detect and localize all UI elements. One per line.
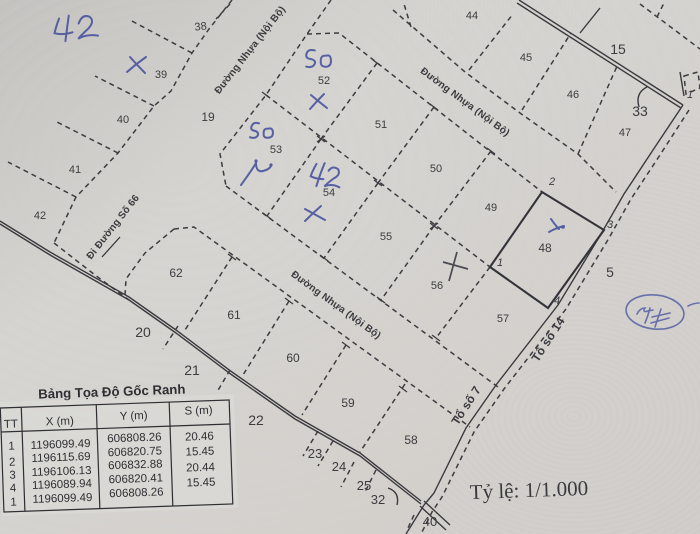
- svg-text:61: 61: [227, 308, 241, 322]
- svg-text:606808.26: 606808.26: [107, 431, 162, 445]
- svg-text:TT: TT: [4, 418, 18, 430]
- svg-text:55: 55: [380, 231, 392, 243]
- svg-text:24: 24: [332, 459, 346, 474]
- svg-text:52: 52: [318, 75, 330, 87]
- svg-text:45: 45: [520, 52, 532, 64]
- svg-text:20.46: 20.46: [185, 431, 214, 444]
- svg-text:20: 20: [135, 324, 151, 340]
- svg-text:58: 58: [404, 433, 418, 447]
- svg-text:15.45: 15.45: [185, 446, 214, 459]
- svg-text:1: 1: [8, 441, 15, 453]
- svg-text:49: 49: [485, 202, 497, 214]
- svg-text:3: 3: [607, 219, 614, 231]
- svg-text:2: 2: [9, 457, 16, 469]
- svg-text:33: 33: [632, 103, 648, 119]
- svg-text:3: 3: [9, 470, 16, 482]
- svg-text:42: 42: [34, 210, 46, 222]
- svg-text:57: 57: [497, 313, 509, 325]
- svg-text:23: 23: [308, 446, 322, 461]
- svg-text:1196089.94: 1196089.94: [32, 478, 93, 492]
- svg-text:44: 44: [466, 10, 478, 22]
- svg-text:51: 51: [375, 119, 387, 131]
- svg-text:5: 5: [606, 264, 614, 280]
- svg-text:60: 60: [286, 351, 300, 365]
- svg-text:47: 47: [619, 127, 631, 139]
- svg-text:22: 22: [248, 412, 264, 428]
- svg-text:606808.26: 606808.26: [109, 486, 164, 500]
- svg-text:21: 21: [184, 362, 200, 378]
- svg-text:X (m): X (m): [46, 415, 75, 428]
- svg-text:15.45: 15.45: [186, 477, 215, 490]
- svg-text:40: 40: [423, 514, 437, 529]
- svg-text:Tỷ lệ: 1/1.000: Tỷ lệ: 1/1.000: [469, 476, 588, 504]
- svg-text:53: 53: [270, 144, 282, 156]
- svg-text:20.44: 20.44: [186, 462, 216, 475]
- svg-text:59: 59: [341, 396, 355, 410]
- svg-text:46: 46: [567, 89, 579, 101]
- svg-text:4: 4: [554, 295, 560, 307]
- svg-text:41: 41: [69, 164, 81, 176]
- svg-text:62: 62: [169, 266, 183, 280]
- svg-text:4: 4: [10, 482, 17, 494]
- svg-text:1: 1: [10, 496, 17, 508]
- svg-text:50: 50: [430, 163, 442, 175]
- svg-text:2: 2: [548, 176, 555, 188]
- svg-text:54: 54: [323, 187, 335, 199]
- svg-text:39: 39: [155, 69, 167, 81]
- svg-text:Y (m): Y (m): [120, 410, 148, 423]
- svg-text:S (m): S (m): [184, 405, 213, 418]
- svg-text:25: 25: [357, 478, 371, 493]
- svg-text:48: 48: [538, 241, 552, 255]
- svg-text:1196106.13: 1196106.13: [31, 465, 91, 479]
- svg-text:38: 38: [194, 20, 207, 33]
- svg-text:40: 40: [117, 114, 129, 126]
- svg-text:15: 15: [610, 41, 626, 57]
- svg-text:1: 1: [687, 89, 693, 101]
- svg-text:19: 19: [201, 110, 215, 124]
- svg-text:56: 56: [431, 280, 443, 292]
- svg-text:32: 32: [371, 492, 385, 507]
- svg-text:606832.88: 606832.88: [108, 458, 163, 472]
- svg-text:606820.41: 606820.41: [108, 472, 163, 486]
- svg-text:1196115.69: 1196115.69: [31, 451, 90, 465]
- svg-text:606820.75: 606820.75: [108, 445, 163, 459]
- svg-text:1196099.49: 1196099.49: [30, 438, 90, 452]
- svg-text:1196099.49: 1196099.49: [32, 492, 92, 506]
- svg-text:1: 1: [497, 257, 503, 269]
